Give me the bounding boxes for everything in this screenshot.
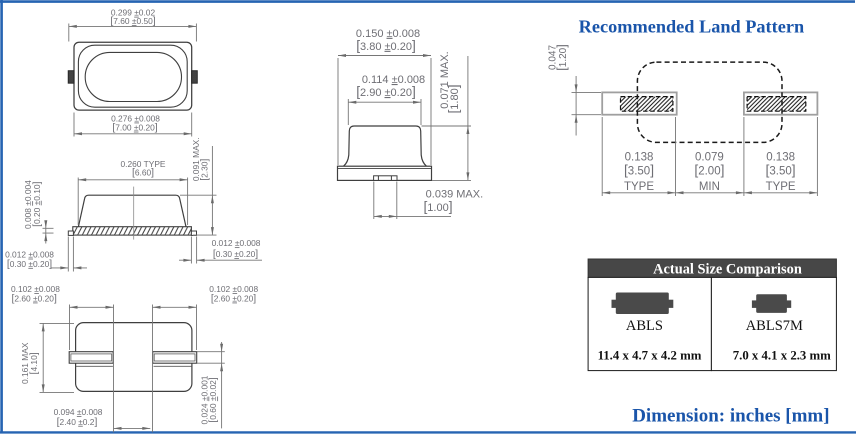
svg-text:ABLS7M: ABLS7M (746, 318, 803, 334)
svg-text:[0.30 ±0.20]: [0.30 ±0.20] (213, 249, 258, 260)
svg-text:[0.20 ±0.10]: [0.20 ±0.10] (32, 181, 43, 226)
svg-text:[4.10]: [4.10] (29, 352, 40, 374)
svg-text:[7.00 ±0.20]: [7.00 ±0.20] (112, 123, 157, 134)
svg-text:[1.80]: [1.80] (446, 84, 461, 113)
svg-text:ABLS: ABLS (626, 318, 663, 334)
svg-text:[2.40 ±0.2]: [2.40 ±0.2] (57, 417, 98, 428)
svg-text:0.138: 0.138 (625, 152, 654, 164)
svg-text:0.138: 0.138 (766, 152, 795, 164)
svg-text:[3.50]: [3.50] (766, 162, 796, 177)
svg-text:TYPE: TYPE (766, 181, 796, 193)
svg-text:11.4 x 4.7 x 4.2 mm: 11.4 x 4.7 x 4.2 mm (598, 348, 702, 362)
svg-text:[2.60 ±0.20]: [2.60 ±0.20] (211, 294, 256, 305)
svg-text:[3.80 ±0.20]: [3.80 ±0.20] (356, 38, 416, 53)
svg-text:[0.30 ±0.20]: [0.30 ±0.20] (7, 259, 52, 270)
svg-text:TYPE: TYPE (624, 181, 654, 193)
svg-text:Dimension: inches [mm]: Dimension: inches [mm] (632, 405, 829, 426)
svg-text:[2.30]: [2.30] (199, 159, 210, 181)
svg-text:[6.60]: [6.60] (132, 168, 154, 179)
svg-text:7.0 x 4.1 x 2.3 mm: 7.0 x 4.1 x 2.3 mm (733, 348, 831, 362)
svg-text:[0.60 ±0.02]: [0.60 ±0.02] (208, 377, 219, 422)
svg-text:Recommended Land Pattern: Recommended Land Pattern (579, 17, 804, 37)
svg-text:[2.00]: [2.00] (694, 162, 724, 177)
svg-text:0.102 ±0.008: 0.102 ±0.008 (209, 284, 258, 294)
svg-text:0.102 ±0.008: 0.102 ±0.008 (11, 284, 60, 294)
svg-text:0.012 ±0.008: 0.012 ±0.008 (212, 238, 261, 248)
svg-text:0.094 ±0.008: 0.094 ±0.008 (54, 407, 103, 417)
svg-text:[1.20]: [1.20] (555, 44, 569, 70)
svg-text:0.039 MAX.: 0.039 MAX. (426, 189, 483, 201)
svg-text:[7.60 ±0.50]: [7.60 ±0.50] (110, 16, 155, 27)
svg-text:0.150 ±0.008: 0.150 ±0.008 (356, 28, 420, 40)
svg-text:[2.90 ±0.20]: [2.90 ±0.20] (356, 84, 416, 99)
svg-text:MIN: MIN (699, 181, 720, 193)
svg-text:[1.00]: [1.00] (423, 199, 452, 214)
svg-text:[2.60 ±0.20]: [2.60 ±0.20] (12, 294, 57, 305)
svg-text:0.079: 0.079 (695, 152, 724, 164)
svg-text:[3.50]: [3.50] (624, 162, 654, 177)
svg-text:Actual Size Comparison: Actual Size Comparison (653, 261, 802, 277)
